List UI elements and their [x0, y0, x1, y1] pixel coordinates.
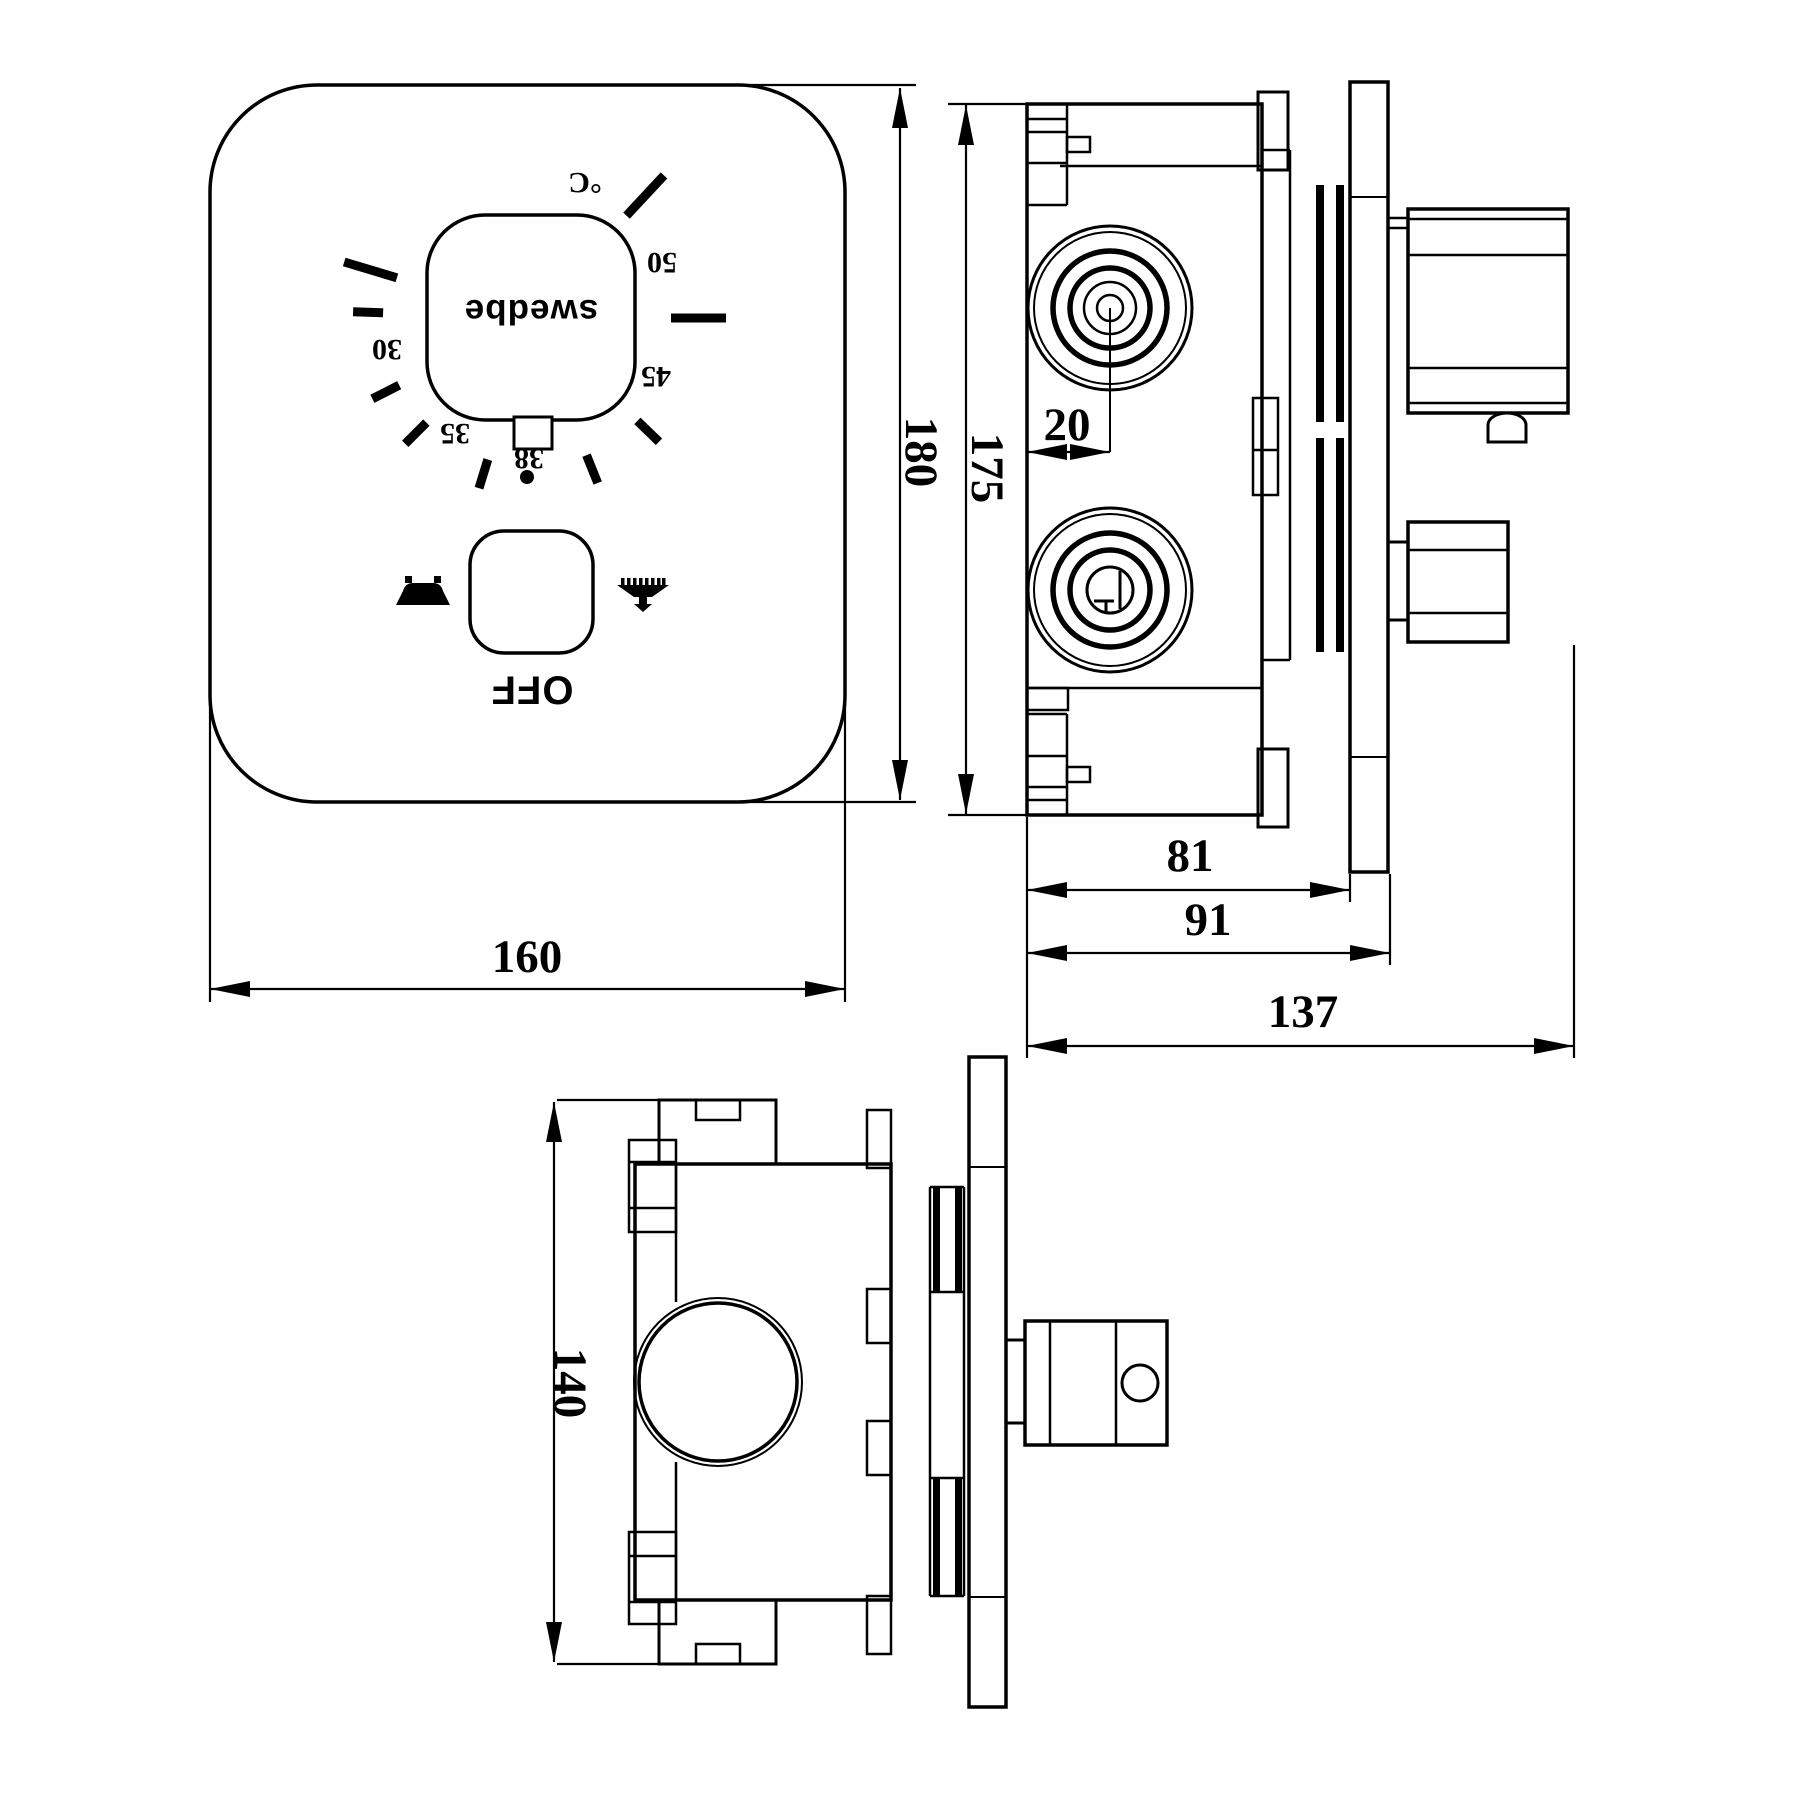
dial-mark-38: 38	[514, 441, 544, 475]
body-top-steps	[1027, 104, 1090, 205]
dial-mark-50: 50	[647, 245, 677, 279]
cartridge-top-view	[634, 1298, 802, 1466]
knob-top-view	[1006, 1321, 1167, 1445]
side-view	[1027, 82, 1568, 872]
off-label: OFF	[491, 667, 574, 712]
wall-section-bottom	[930, 1187, 964, 1596]
diverter-knob	[470, 531, 593, 653]
bathtub-icon	[396, 576, 450, 605]
dial-unit-label: °C	[568, 165, 602, 199]
bottom-view	[629, 1057, 1167, 1707]
cover-plate-bottom	[969, 1057, 1006, 1707]
shower-icon	[617, 578, 669, 612]
body-outline	[635, 1164, 891, 1600]
dim-plate-width: 160	[492, 930, 563, 984]
right-tabs	[867, 1110, 891, 1654]
dial-mark-45: 45	[641, 359, 671, 393]
diverter-knob-side	[1388, 522, 1508, 642]
drawing-geometry	[0, 0, 1800, 1800]
dial-mark-35: 35	[440, 416, 470, 450]
body-bottom-steps	[1027, 714, 1090, 815]
dim-plate-height: 180	[894, 417, 948, 488]
dim-body-depth: 81	[1167, 829, 1214, 883]
dim-body-width: 140	[543, 1348, 597, 1419]
lower-cartridge	[1028, 508, 1192, 672]
wall-section	[1253, 150, 1344, 660]
valve-body	[1027, 104, 1262, 815]
thermostatic-valve-technical-drawing: 160 180 175 20 81 91 137 140 swedbe OFF …	[0, 0, 1800, 1800]
dim-body-height: 175	[960, 433, 1014, 504]
dim-plate-face-depth: 91	[1185, 893, 1232, 947]
temperature-knob-side	[1388, 209, 1568, 442]
dial-mark-30: 30	[372, 332, 402, 366]
cover-plate-edge	[1350, 82, 1388, 872]
brand-logo: swedbe	[464, 291, 598, 331]
dim-total-depth: 137	[1268, 985, 1339, 1039]
dim-cartridge-offset: 20	[1044, 398, 1091, 452]
